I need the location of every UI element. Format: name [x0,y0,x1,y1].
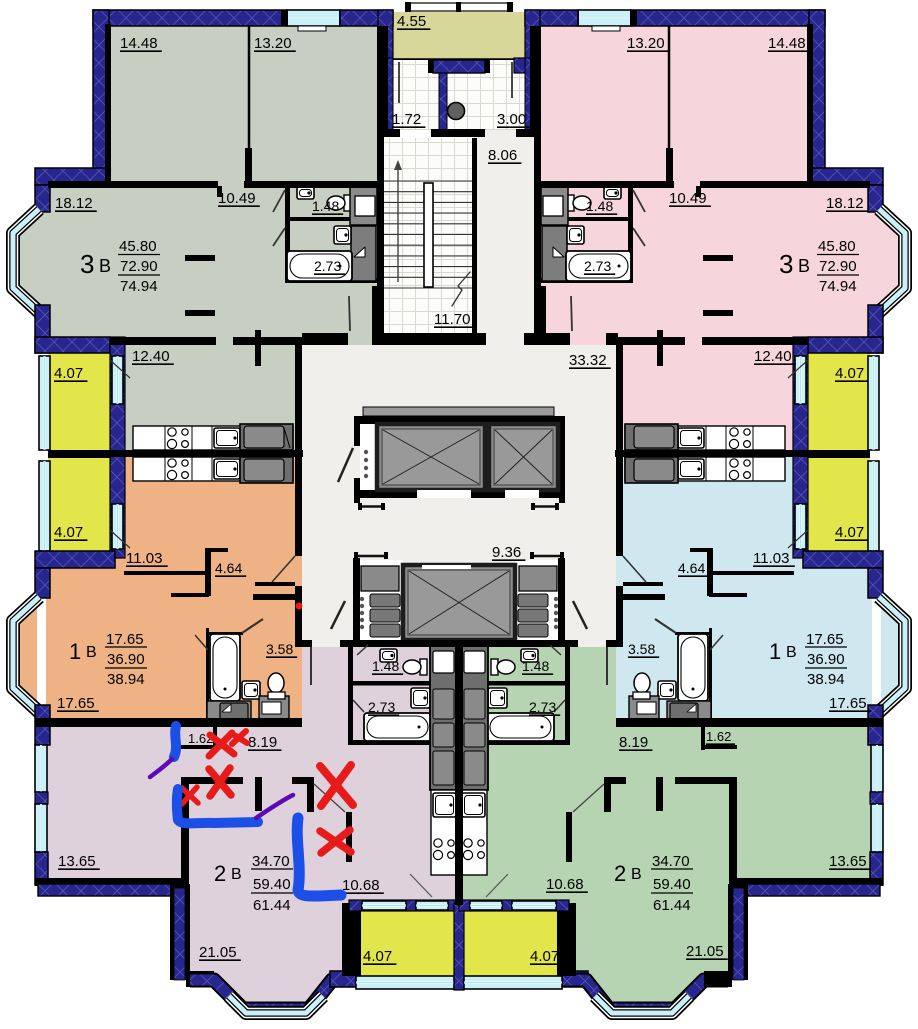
svg-text:21.05: 21.05 [199,944,237,961]
svg-text:36.90: 36.90 [107,651,145,668]
svg-text:В: В [231,866,242,883]
svg-text:4.64: 4.64 [215,560,242,576]
svg-text:38.94: 38.94 [807,671,845,688]
svg-text:61.44: 61.44 [653,897,691,914]
svg-text:1: 1 [69,639,81,664]
svg-text:9.36: 9.36 [492,544,521,561]
svg-text:3.00: 3.00 [497,111,526,128]
svg-text:4.07: 4.07 [54,365,83,382]
svg-text:4.07: 4.07 [835,365,864,382]
svg-text:10.49: 10.49 [669,190,707,207]
svg-text:В: В [798,256,810,276]
svg-text:10.49: 10.49 [218,190,256,207]
svg-text:74.94: 74.94 [120,278,158,295]
svg-text:В: В [86,644,97,661]
svg-text:12.40: 12.40 [132,348,170,365]
svg-text:17.65: 17.65 [806,631,844,648]
svg-text:1.62: 1.62 [706,729,731,744]
svg-text:8.06: 8.06 [488,147,517,164]
svg-text:72.90: 72.90 [120,258,158,275]
svg-text:4.07: 4.07 [54,524,83,541]
svg-text:18.12: 18.12 [826,195,864,212]
svg-text:17.65: 17.65 [106,631,144,648]
svg-text:13.65: 13.65 [58,853,96,870]
svg-text:3: 3 [779,249,793,279]
svg-text:2: 2 [214,861,226,886]
svg-text:45.80: 45.80 [818,238,856,255]
svg-text:В: В [786,644,797,661]
svg-text:13.65: 13.65 [829,853,867,870]
svg-text:13.20: 13.20 [627,35,665,52]
svg-text:34.70: 34.70 [252,853,290,870]
svg-text:4.64: 4.64 [678,560,705,576]
svg-text:59.40: 59.40 [253,876,291,893]
svg-text:13.20: 13.20 [254,35,292,52]
svg-text:2.73: 2.73 [368,699,395,715]
svg-text:8.19: 8.19 [248,734,277,751]
svg-text:36.90: 36.90 [807,651,845,668]
svg-text:1.48: 1.48 [586,198,613,214]
svg-text:10.68: 10.68 [546,876,584,893]
svg-text:1.48: 1.48 [312,198,339,214]
svg-text:В: В [99,256,111,276]
svg-text:61.44: 61.44 [253,897,291,914]
svg-text:72.90: 72.90 [819,258,857,275]
svg-text:2: 2 [614,861,626,886]
svg-text:17.65: 17.65 [57,695,95,712]
svg-text:14.48: 14.48 [768,35,806,52]
svg-text:1.48: 1.48 [372,658,399,674]
svg-text:17.65: 17.65 [829,695,867,712]
svg-text:2.73: 2.73 [314,258,341,274]
svg-text:2.73: 2.73 [584,258,611,274]
svg-text:11.03: 11.03 [126,550,162,567]
svg-text:3.58: 3.58 [266,641,293,657]
svg-text:8.19: 8.19 [619,734,648,751]
svg-text:12.40: 12.40 [754,348,792,365]
svg-text:14.48: 14.48 [120,35,158,52]
svg-text:4.55: 4.55 [397,13,426,30]
svg-text:45.80: 45.80 [119,238,157,255]
svg-text:1.72: 1.72 [392,111,421,128]
svg-text:10.68: 10.68 [342,877,380,894]
svg-text:1: 1 [769,639,781,664]
svg-text:21.05: 21.05 [686,943,724,960]
svg-text:2.73: 2.73 [529,699,556,715]
svg-text:В: В [631,866,642,883]
svg-text:59.40: 59.40 [653,876,691,893]
svg-text:1.48: 1.48 [522,658,549,674]
svg-text:38.94: 38.94 [107,671,145,688]
svg-text:74.94: 74.94 [819,278,857,295]
svg-text:11.70: 11.70 [434,311,470,328]
svg-text:4.07: 4.07 [363,948,392,965]
svg-text:4.07: 4.07 [835,524,864,541]
svg-text:11.03: 11.03 [753,550,789,567]
svg-text:18.12: 18.12 [55,195,93,212]
svg-text:3.58: 3.58 [628,641,655,657]
svg-text:4.07: 4.07 [530,948,559,965]
svg-text:34.70: 34.70 [652,853,690,870]
svg-text:3: 3 [80,249,94,279]
svg-text:33.32: 33.32 [569,352,607,369]
